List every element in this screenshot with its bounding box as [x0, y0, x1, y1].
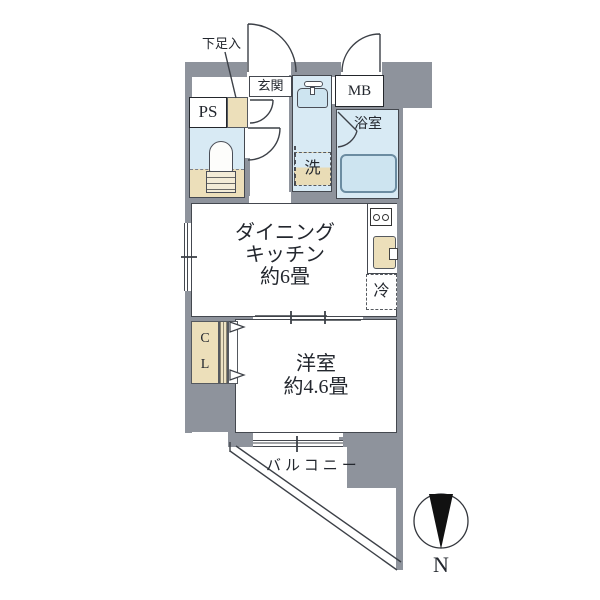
compass-needle: [429, 494, 453, 549]
meter-box-door-arc: [342, 34, 380, 72]
bedroom-label-line2: 約4.6畳: [236, 376, 396, 399]
window-bedroom-south: [253, 440, 343, 447]
shoe-cabinet-label: 下足入: [202, 37, 241, 51]
toilet-door-arc: [248, 128, 280, 160]
compass-north-label: N: [429, 553, 453, 577]
closet-slider-hatch: [219, 321, 228, 384]
dk-label-line1: ダイニング: [205, 222, 365, 244]
laundry-label: 洗: [294, 152, 331, 186]
stove-burner-right: [382, 214, 389, 221]
shoe-cabinet-box: [227, 97, 248, 128]
wall-top-right-block: [382, 62, 432, 108]
washbasin-faucet-stem: [310, 87, 315, 95]
toilet-bowl-icon: [209, 141, 233, 174]
bedroom-label-line1: 洋室: [236, 353, 396, 376]
entrance-door-arc: [248, 24, 296, 72]
dk-label-line2: キッチン: [205, 244, 365, 266]
toilet-tank-icon: [206, 171, 236, 193]
stove-icon: [370, 208, 392, 226]
wall-top-left: [185, 62, 247, 77]
pipe-space-label: PS: [189, 97, 227, 128]
kitchen-sink-icon: [373, 236, 396, 269]
compass-icon: [414, 494, 468, 549]
wall-bedroom-south-left: [228, 432, 253, 447]
closet-label-c: C: [191, 326, 219, 352]
balcony-label: バルコニー: [266, 458, 361, 475]
closet-label: C L: [191, 326, 219, 378]
meter-box-label: MB: [335, 75, 384, 107]
shoe-cabinet-door-arc: [250, 100, 273, 123]
floor-plan: 下足入 玄関 PS MB 浴室 洗 冷 ダイニング キッチン 約6畳 C L 洋…: [0, 0, 600, 600]
bedroom-label: 洋室 約4.6畳: [236, 353, 396, 399]
closet-label-l: L: [191, 352, 219, 378]
compass-circle: [414, 494, 468, 548]
bathtub-icon: [340, 154, 397, 193]
wall-bottom-left-block: [188, 383, 235, 432]
entrance-label: 玄関: [249, 76, 292, 97]
window-dk-west: [184, 223, 192, 291]
dk-label-line3: 約6畳: [205, 266, 365, 288]
stove-burner-left: [373, 214, 380, 221]
refrigerator-label: 冷: [366, 274, 397, 310]
bathroom-label: 浴室: [354, 117, 382, 132]
dining-kitchen-label: ダイニング キッチン 約6畳: [205, 222, 365, 288]
kitchen-faucet-icon: [389, 248, 398, 260]
